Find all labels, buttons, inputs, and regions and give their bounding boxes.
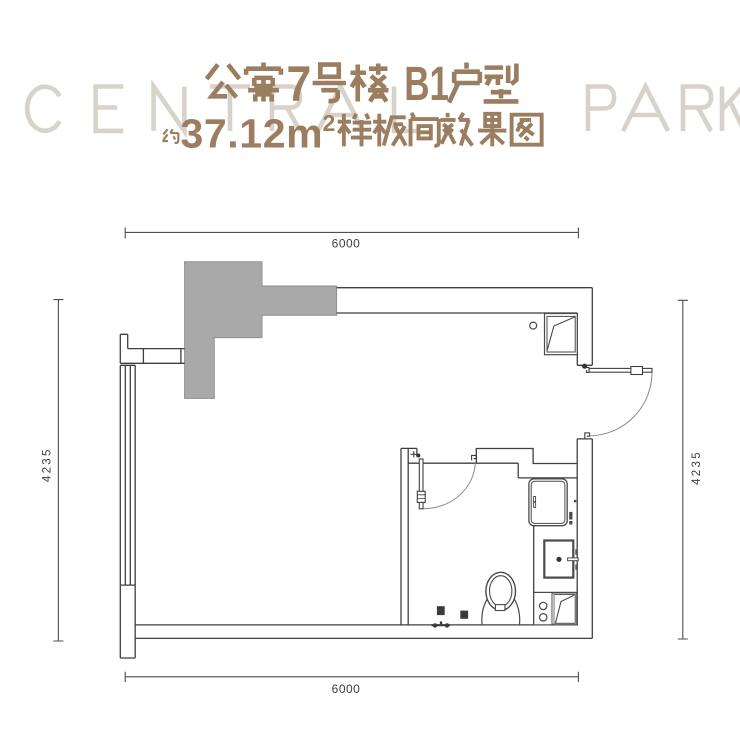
svg-text:6000: 6000 [332, 236, 361, 250]
svg-text:4235: 4235 [42, 447, 54, 482]
svg-text:6000: 6000 [332, 682, 361, 696]
svg-text:B1: B1 [404, 57, 449, 111]
svg-text:4235: 4235 [691, 450, 703, 485]
svg-text:7: 7 [287, 57, 312, 113]
svg-text:2: 2 [323, 110, 336, 136]
svg-text:37.12m: 37.12m [181, 111, 324, 157]
